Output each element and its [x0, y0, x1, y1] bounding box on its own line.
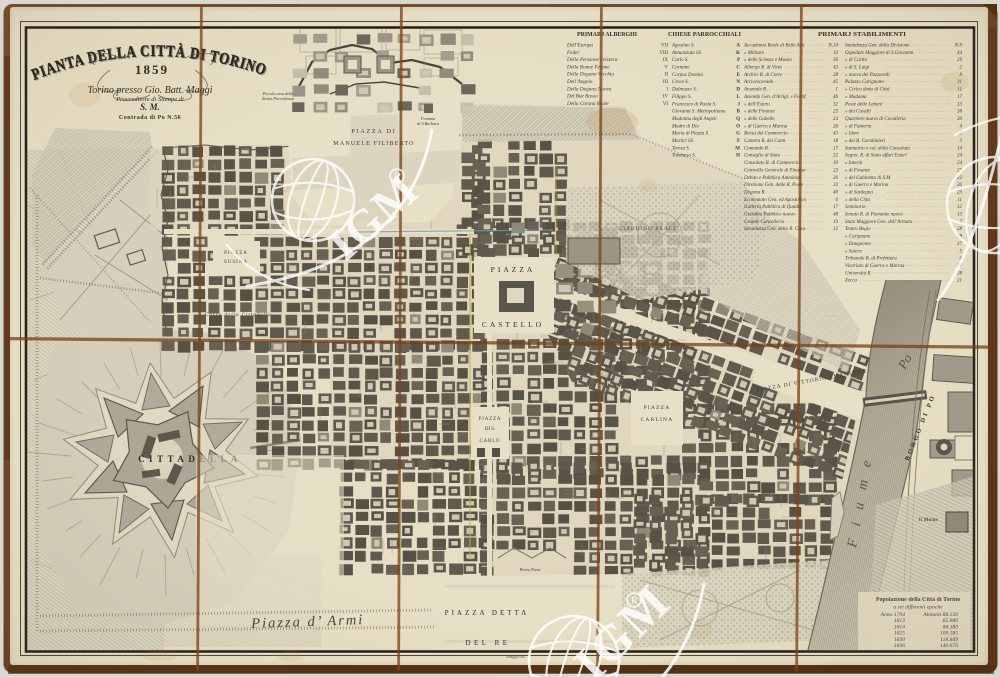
svg-text:R: R	[631, 595, 637, 605]
svg-text:R: R	[394, 171, 400, 181]
